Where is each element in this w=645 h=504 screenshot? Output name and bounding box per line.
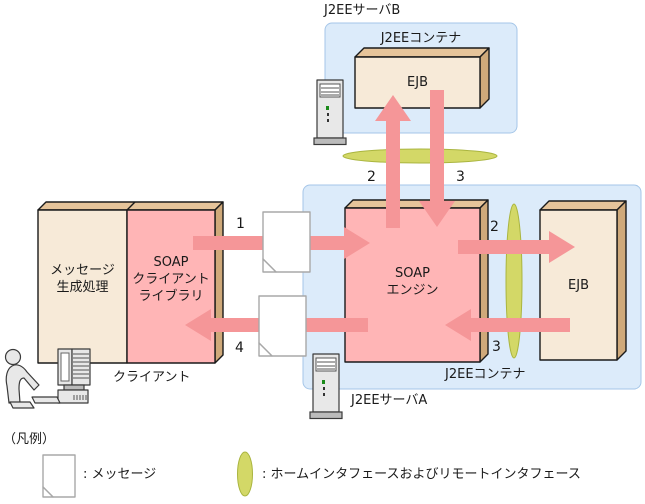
- legend-interface-label: : ホームインタフェースおよびリモートインタフェース: [262, 466, 581, 483]
- client-caption: クライアント: [113, 369, 190, 386]
- diagram-canvas: [0, 0, 645, 504]
- flow-step4-label: 4: [235, 340, 244, 356]
- message-icon-response: [259, 296, 306, 356]
- server-icon-serverb: [314, 80, 346, 145]
- soap-engine-label: SOAP エンジン: [345, 265, 480, 299]
- server-b-container-label: J2EEコンテナ: [325, 30, 517, 47]
- legend-message-label: : メッセージ: [83, 466, 156, 483]
- interface-ellipse-serverb: [343, 149, 497, 163]
- legend-title: （凡例）: [3, 431, 55, 448]
- flow-step3-label-serverb: 3: [456, 169, 465, 185]
- server-b-ejb-label: EJB: [355, 74, 480, 91]
- client-soap-library-label: SOAP クライアント ライブラリ: [127, 254, 215, 305]
- flow-step2-label-serverb: 2: [367, 169, 376, 185]
- client-message-process-label: メッセージ 生成処理: [38, 262, 127, 296]
- flow-step3-label-servera: 3: [492, 339, 501, 355]
- server-a-container-label: J2EEコンテナ: [445, 366, 526, 383]
- flow-step2-label-servera: 2: [490, 219, 499, 235]
- flow-step1-label: 1: [236, 216, 245, 232]
- server-icon-servera: [310, 354, 342, 419]
- legend-message-icon: [43, 455, 75, 497]
- server-a-title: J2EEサーバA: [351, 392, 427, 409]
- legend-interface-icon: [238, 452, 253, 496]
- soap-architecture-diagram: J2EEサーバB J2EEコンテナ EJB 2 3 メッセージ 生成処理 SOA…: [0, 0, 645, 504]
- message-icon-request: [263, 212, 310, 272]
- interface-ellipse-servera: [506, 204, 522, 358]
- server-a-ejb-label: EJB: [540, 277, 617, 294]
- keyboard-icon: [32, 397, 60, 403]
- server-b-title: J2EEサーバB: [324, 2, 400, 19]
